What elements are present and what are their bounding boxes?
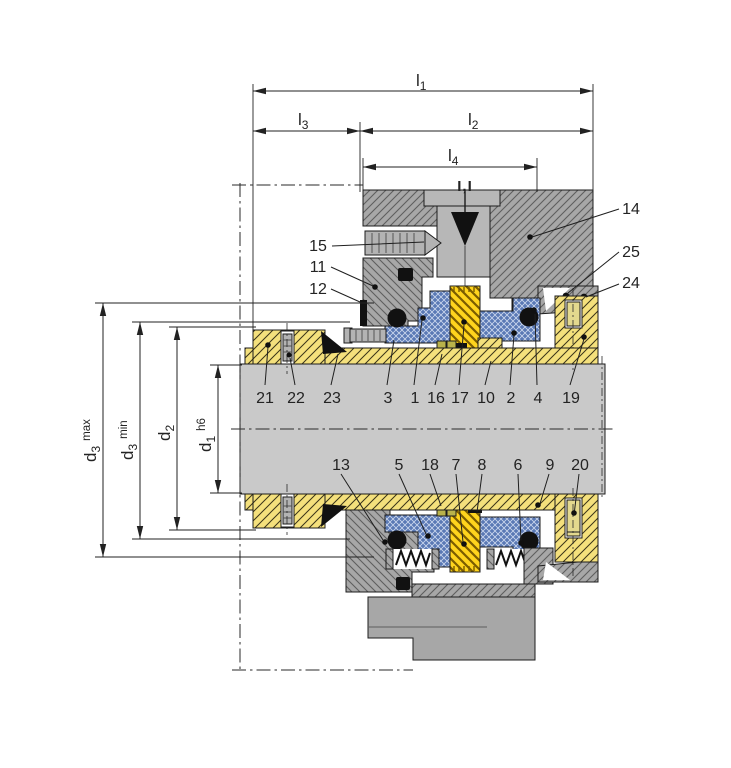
part-label-5: 5 xyxy=(395,457,404,474)
part-label-13: 13 xyxy=(332,457,350,474)
cover-gasket xyxy=(360,300,367,326)
part-label-12: 12 xyxy=(309,281,327,298)
part-label-4: 4 xyxy=(534,390,543,407)
oring-left-lower xyxy=(388,531,407,550)
collar-set-screw-lower xyxy=(283,497,292,524)
mechanical-seal-drawing: 21 22 23 3 1 16 17 10 2 4 19 13 5 18 7 8… xyxy=(0,0,731,768)
part-label-24: 24 xyxy=(622,275,640,292)
dim-label-l2: l2 xyxy=(468,110,479,132)
lower-assembly xyxy=(245,484,598,660)
dim-label-l4: l4 xyxy=(448,146,459,168)
spring-seat-b xyxy=(432,549,439,569)
spring-seat-a xyxy=(386,549,393,569)
part-label-7: 7 xyxy=(452,457,461,474)
part-label-16: 16 xyxy=(427,390,445,407)
part-label-18: 18 xyxy=(421,457,439,474)
part-label-8: 8 xyxy=(478,457,487,474)
dim-label-d3max: d3max xyxy=(81,419,103,462)
part-label-9: 9 xyxy=(546,457,555,474)
part-label-17: 17 xyxy=(451,390,469,407)
technical-drawing-canvas: 21 22 23 3 1 16 17 10 2 4 19 13 5 18 7 8… xyxy=(0,0,731,768)
part-label-14: 14 xyxy=(622,201,640,218)
dim-label-d3min: d3min xyxy=(118,420,140,460)
housing-base xyxy=(368,597,535,660)
wedge-ring-23 xyxy=(321,331,347,354)
part-label-10: 10 xyxy=(477,390,495,407)
part-label-25: 25 xyxy=(622,244,640,261)
cover-oring xyxy=(398,268,413,281)
wedge-ring-lower xyxy=(321,504,347,527)
part-label-15: 15 xyxy=(309,238,327,255)
spring-seat-c xyxy=(487,549,494,569)
collar-oring xyxy=(396,577,410,590)
oring-left xyxy=(388,309,407,328)
sleeve-step xyxy=(478,338,502,348)
part-label-19: 19 xyxy=(562,390,580,407)
part-label-22: 22 xyxy=(287,390,305,407)
part-label-1: 1 xyxy=(411,390,420,407)
part-label-11: 11 xyxy=(310,259,327,276)
port-mark-label: I,I xyxy=(457,178,473,195)
end-block-screw-lower xyxy=(567,500,580,536)
part-label-23: 23 xyxy=(323,390,341,407)
end-block-screw xyxy=(567,302,580,326)
part-label-2: 2 xyxy=(507,390,516,407)
housing-band xyxy=(412,584,535,597)
part-label-20: 20 xyxy=(571,457,589,474)
dim-label-d1: d1h6 xyxy=(196,418,218,452)
part-label-6: 6 xyxy=(514,457,523,474)
dim-label-d2: d2 xyxy=(155,425,177,441)
dim-label-l3: l3 xyxy=(298,110,309,132)
part-label-3: 3 xyxy=(384,390,393,407)
part-label-21: 21 xyxy=(256,390,274,407)
dim-label-l1: l1 xyxy=(416,71,427,93)
